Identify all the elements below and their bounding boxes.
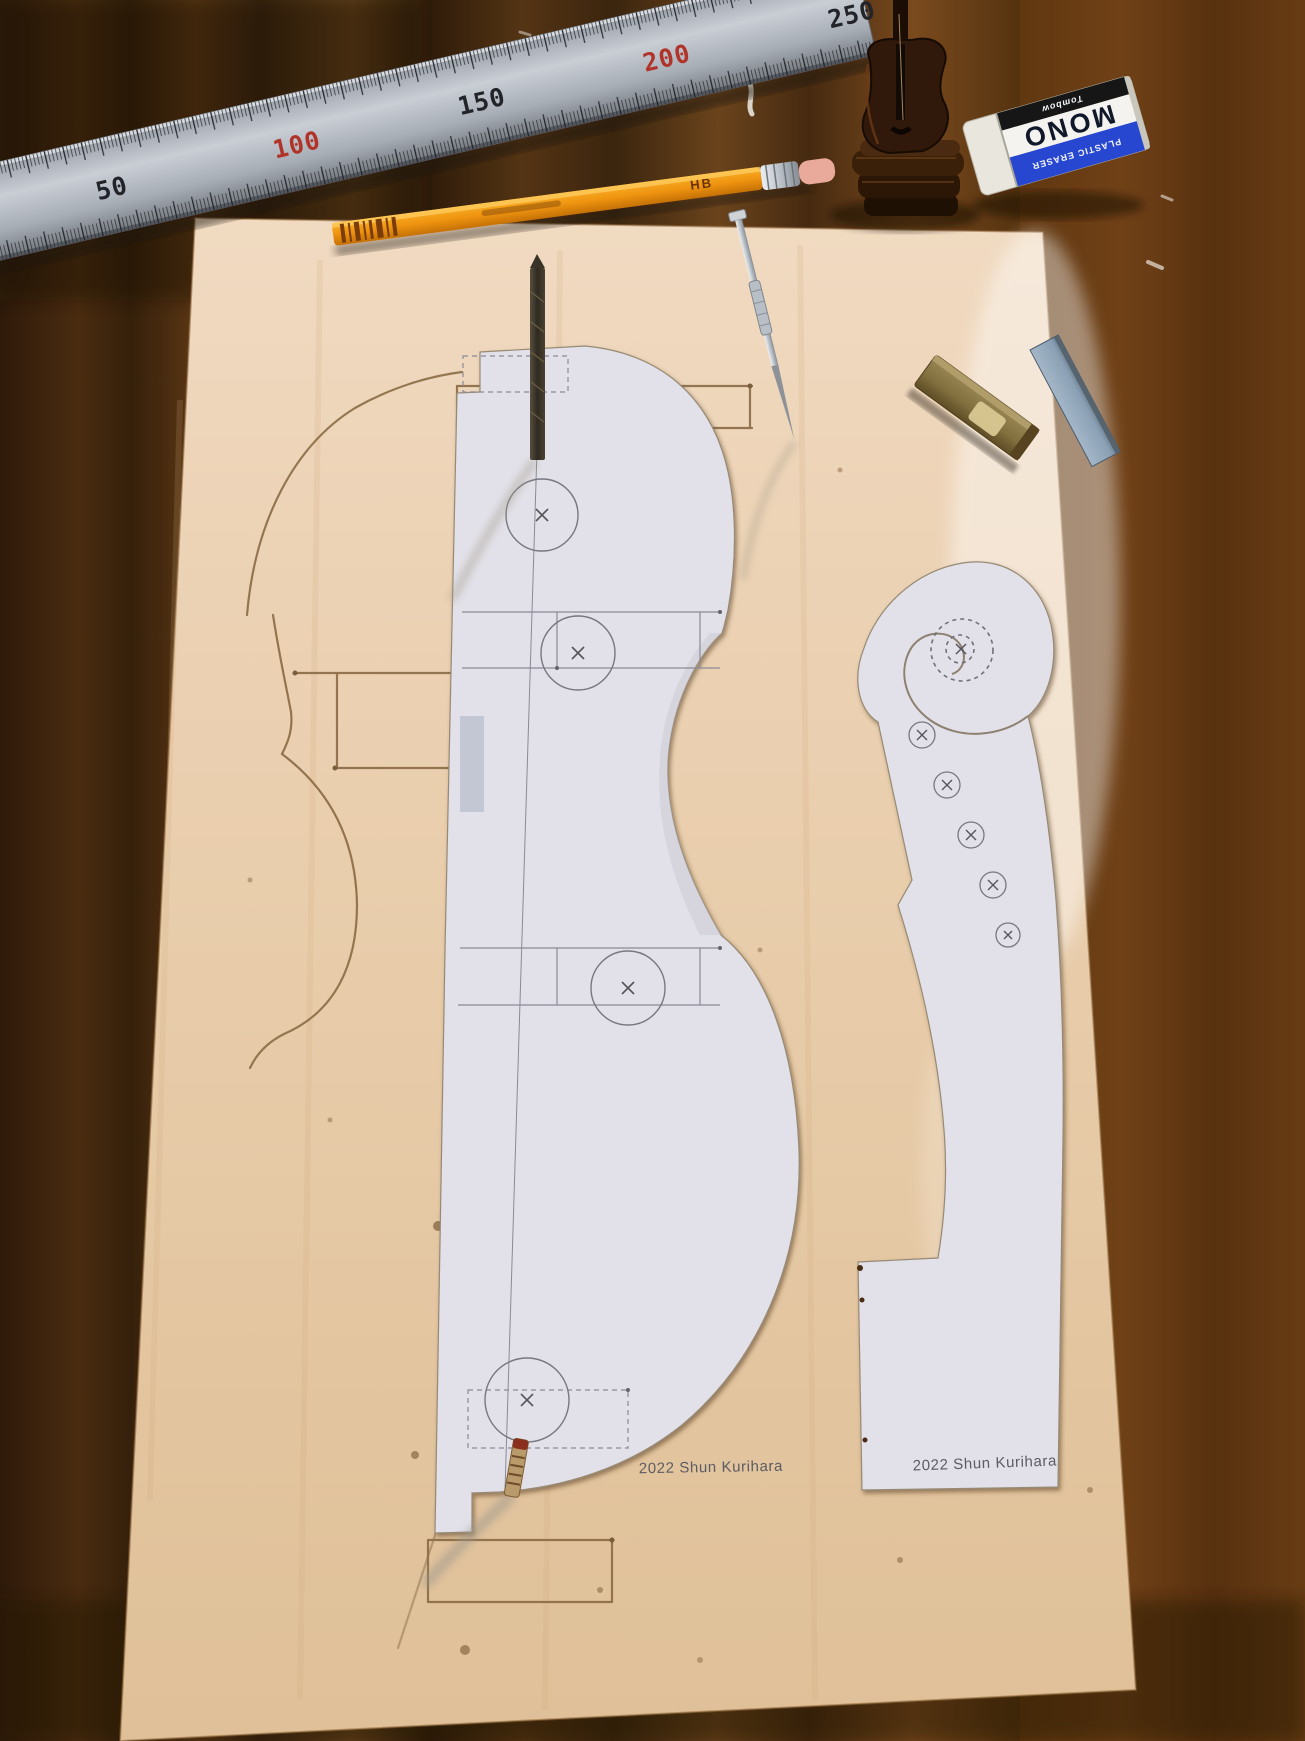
workbench-photo: 2022 Shun Kurihara <box>0 0 1305 1741</box>
pencil-ferrule <box>760 161 801 191</box>
tape-smudge <box>460 716 484 812</box>
template-signature: 2022 Shun Kurihara <box>639 1458 784 1478</box>
workbench-scene: 2022 Shun Kurihara <box>0 0 1305 1741</box>
pencil-grade-label: HB <box>689 175 714 193</box>
